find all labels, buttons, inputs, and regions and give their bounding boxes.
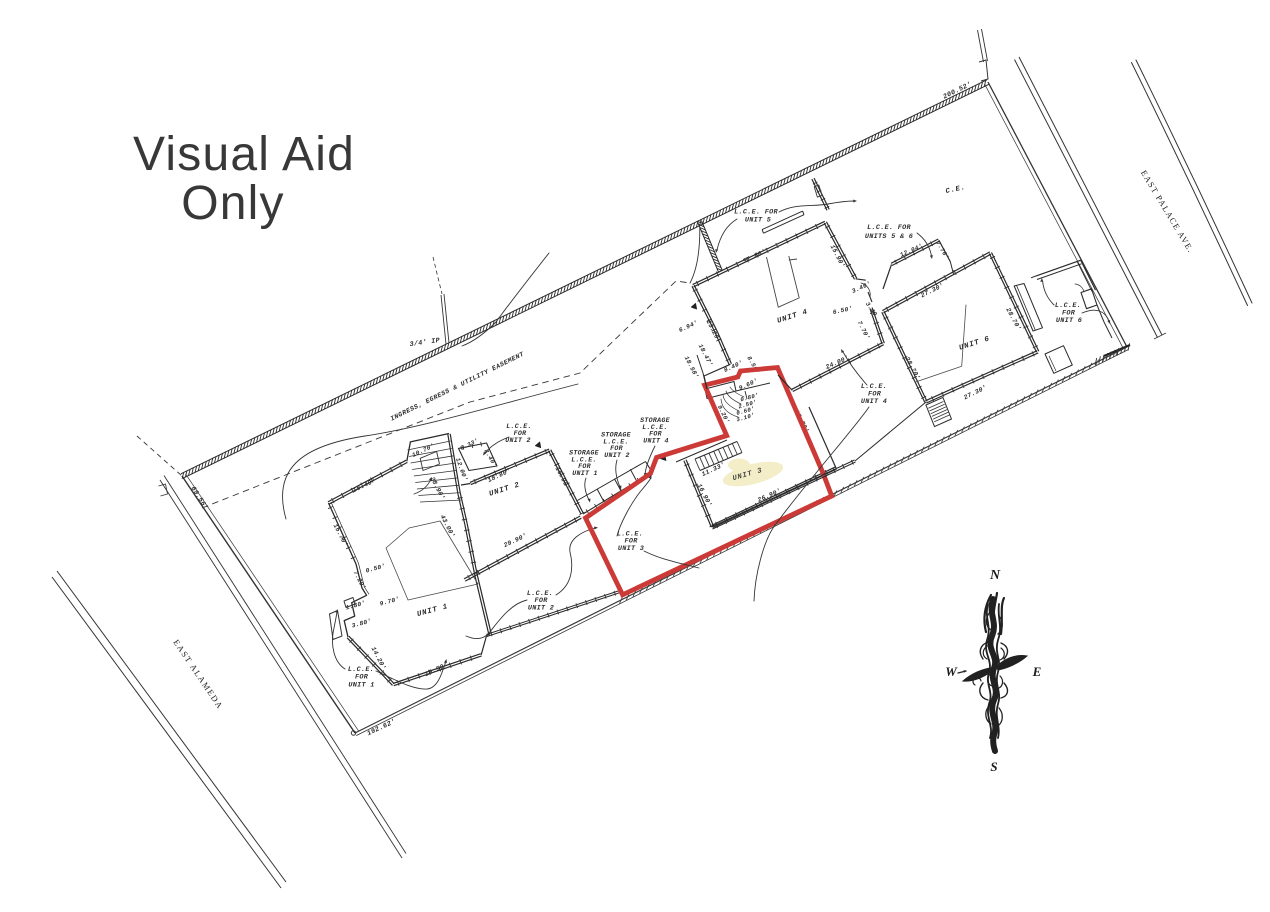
svg-text:UNIT 5: UNIT 5 [745, 217, 771, 225]
svg-text:FOR: FOR [355, 674, 369, 682]
svg-text:L.C.E.: L.C.E. [506, 423, 532, 430]
svg-text:FOR: FOR [649, 431, 663, 438]
svg-text:UNIT 1: UNIT 1 [348, 682, 374, 690]
svg-text:Visual Aid: Visual Aid [133, 128, 355, 181]
svg-text:FOR: FOR [578, 463, 592, 470]
svg-text:FOR: FOR [514, 430, 528, 437]
svg-text:UNIT 2: UNIT 2 [505, 437, 531, 444]
svg-text:STORAGE: STORAGE [569, 450, 600, 457]
svg-text:UNIT 6: UNIT 6 [1056, 317, 1082, 325]
svg-text:N: N [989, 568, 1001, 583]
svg-text:STORAGE: STORAGE [601, 432, 632, 439]
svg-text:STORAGE: STORAGE [640, 417, 671, 424]
svg-text:UNIT 4: UNIT 4 [643, 438, 669, 445]
svg-text:UNIT 4: UNIT 4 [861, 398, 887, 406]
svg-text:UNIT 1: UNIT 1 [572, 470, 598, 477]
svg-text:UNITS 5 & 6: UNITS 5 & 6 [865, 233, 913, 241]
svg-text:E: E [1032, 664, 1042, 679]
svg-text:UNIT 3: UNIT 3 [618, 545, 644, 553]
svg-text:S: S [990, 759, 997, 774]
svg-text:L.C.E. FOR: L.C.E. FOR [734, 209, 778, 217]
svg-text:W: W [945, 664, 958, 679]
svg-text:L.C.E. FOR: L.C.E. FOR [867, 224, 911, 232]
svg-text:FOR: FOR [610, 445, 624, 452]
svg-text:UNIT 2: UNIT 2 [604, 452, 630, 459]
svg-text:Only: Only [181, 177, 285, 230]
svg-text:UNIT 2: UNIT 2 [528, 605, 554, 613]
